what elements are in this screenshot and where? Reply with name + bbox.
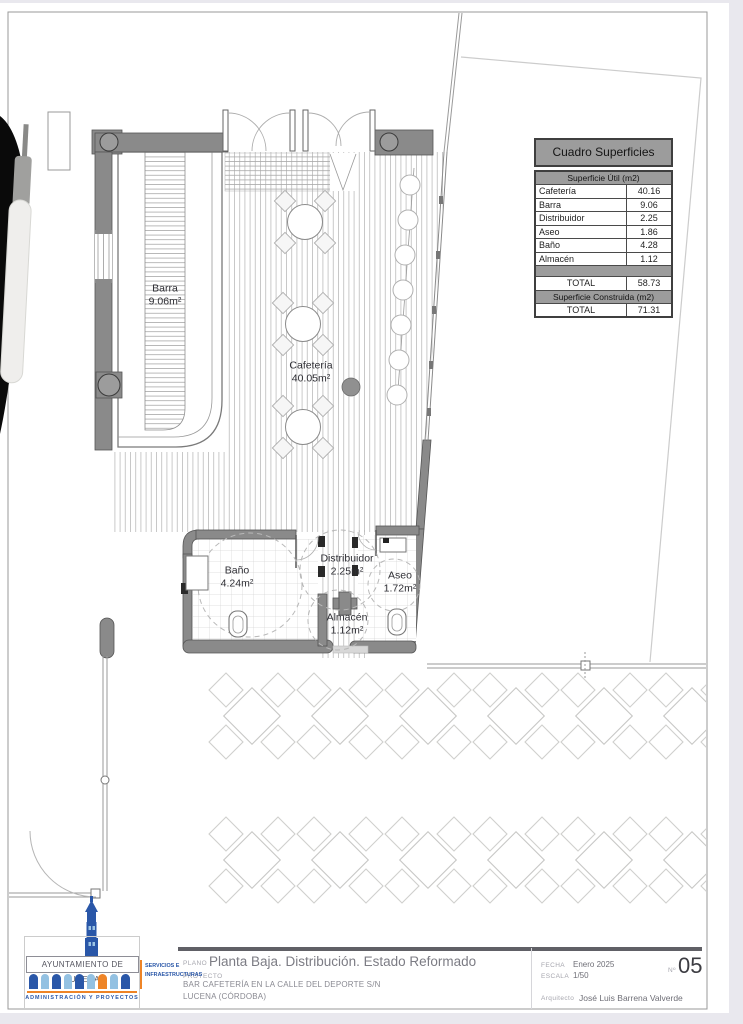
room-label-aseo: Aseo 1.72m² bbox=[384, 569, 417, 594]
escala-value: 1/50 bbox=[573, 971, 589, 980]
sheet-number-label: Nº bbox=[668, 967, 676, 974]
room-name: Barra bbox=[149, 282, 182, 295]
plano-title: Planta Baja. Distribución. Estado Reform… bbox=[209, 954, 476, 969]
table-spacer bbox=[536, 266, 671, 277]
legend-box bbox=[48, 112, 70, 170]
proyecto-line1: BAR CAFETERÍA EN LA CALLE DEL DEPORTE S/… bbox=[183, 980, 381, 989]
room-area: 2.25m² bbox=[320, 565, 373, 578]
sheet-number: 05 bbox=[678, 953, 702, 979]
table-header-construida: Superficie Construida (m2) bbox=[536, 291, 671, 304]
table-row: Barra 9.06 bbox=[536, 199, 671, 213]
scanned-plan-page: { "surfaces_table": { "title": "Cuadro S… bbox=[0, 0, 743, 1024]
row-label: Aseo bbox=[536, 226, 627, 239]
arch-icon bbox=[52, 974, 61, 989]
surfaces-table-body: Superficie Útil (m2) Cafetería 40.16 Bar… bbox=[534, 170, 673, 318]
room-area: 1.72m² bbox=[384, 582, 417, 595]
surfaces-table-title: Cuadro Superficies bbox=[534, 138, 673, 167]
row-value: 40.16 bbox=[627, 185, 671, 198]
room-name: Cafetería bbox=[289, 359, 332, 372]
room-label-barra: Barra 9.06m² bbox=[149, 282, 182, 307]
row-value: 9.06 bbox=[627, 199, 671, 212]
table-row: Baño 4.28 bbox=[536, 239, 671, 253]
arch-icon bbox=[29, 974, 38, 989]
logo-arches bbox=[29, 974, 137, 989]
row-value: 58.73 bbox=[627, 277, 671, 290]
table-row: Aseo 1.86 bbox=[536, 226, 671, 240]
proyecto-line2: LUCENA (CÓRDOBA) bbox=[183, 992, 266, 1001]
arquitecto-value: José Luis Barrena Valverde bbox=[579, 993, 683, 1003]
arch-icon bbox=[110, 974, 119, 989]
terrace-tables bbox=[209, 673, 735, 903]
table-header-util: Superficie Útil (m2) bbox=[536, 172, 671, 185]
surfaces-table: Cuadro Superficies Superficie Útil (m2) … bbox=[534, 138, 673, 318]
room-label-almacen: Almacén 1.12m² bbox=[327, 611, 368, 636]
parcel-boundary-lines bbox=[444, 13, 462, 152]
arch-icon bbox=[41, 974, 50, 989]
photo-artifact bbox=[0, 116, 36, 434]
table-row: Distribuidor 2.25 bbox=[536, 212, 671, 226]
room-area: 4.24m² bbox=[221, 577, 254, 590]
arch-icon bbox=[121, 974, 130, 989]
room-area: 1.12m² bbox=[327, 624, 368, 637]
row-label: Baño bbox=[536, 239, 627, 252]
row-value: 4.28 bbox=[627, 239, 671, 252]
fecha-value: Enero 2025 bbox=[573, 960, 614, 969]
room-area: 9.06m² bbox=[149, 295, 182, 308]
arquitecto-label: Arquitecto bbox=[541, 995, 574, 1002]
row-label: Almacén bbox=[536, 253, 627, 266]
room-name: Aseo bbox=[384, 569, 417, 582]
room-name: Baño bbox=[221, 564, 254, 577]
entrance-doors bbox=[223, 110, 375, 151]
logo-services-line2: INFRAESTRUCTURAS bbox=[145, 971, 202, 980]
arch-icon bbox=[87, 974, 96, 989]
logo-subtitle: ADMINISTRACIÓN Y PROYECTOS bbox=[24, 995, 140, 1001]
logo-services-line1: SERVICIOS E bbox=[145, 962, 202, 971]
logo-services: SERVICIOS E INFRAESTRUCTURAS bbox=[145, 962, 202, 979]
fecha-label: FECHA bbox=[541, 962, 565, 969]
arch-icon bbox=[75, 974, 84, 989]
row-value: 71.31 bbox=[627, 304, 671, 317]
room-label-bano: Baño 4.24m² bbox=[221, 564, 254, 589]
row-value: 1.12 bbox=[627, 253, 671, 266]
table-row: Cafetería 40.16 bbox=[536, 185, 671, 199]
logo-name: AYUNTAMIENTO DE LUCENA bbox=[26, 956, 139, 973]
room-name: Almacén bbox=[327, 611, 368, 624]
title-block-rule bbox=[178, 947, 702, 951]
room-name: Distribuidor bbox=[320, 552, 373, 565]
table-total-util: TOTAL 58.73 bbox=[536, 277, 671, 291]
row-label: Cafetería bbox=[536, 185, 627, 198]
row-value: 1.86 bbox=[627, 226, 671, 239]
room-area: 40.05m² bbox=[289, 372, 332, 385]
entrance-mat bbox=[225, 153, 356, 191]
room-label-distribuidor: Distribuidor 2.25m² bbox=[320, 552, 373, 577]
row-value: 2.25 bbox=[627, 212, 671, 225]
title-block-divider bbox=[531, 948, 532, 1009]
table-total-construida: TOTAL 71.31 bbox=[536, 304, 671, 317]
row-label: Barra bbox=[536, 199, 627, 212]
table-row: Almacén 1.12 bbox=[536, 253, 671, 267]
row-label: Distribuidor bbox=[536, 212, 627, 225]
row-label: TOTAL bbox=[536, 304, 627, 317]
west-wall-window bbox=[95, 230, 112, 283]
arch-icon bbox=[98, 974, 107, 989]
arch-icon bbox=[64, 974, 73, 989]
logo-orange-bar bbox=[140, 960, 142, 989]
logo-orange-rule bbox=[27, 991, 137, 993]
room-label-cafeteria: Cafetería 40.05m² bbox=[289, 359, 332, 384]
row-label: TOTAL bbox=[536, 277, 627, 290]
escala-label: ESCALA bbox=[541, 973, 569, 980]
